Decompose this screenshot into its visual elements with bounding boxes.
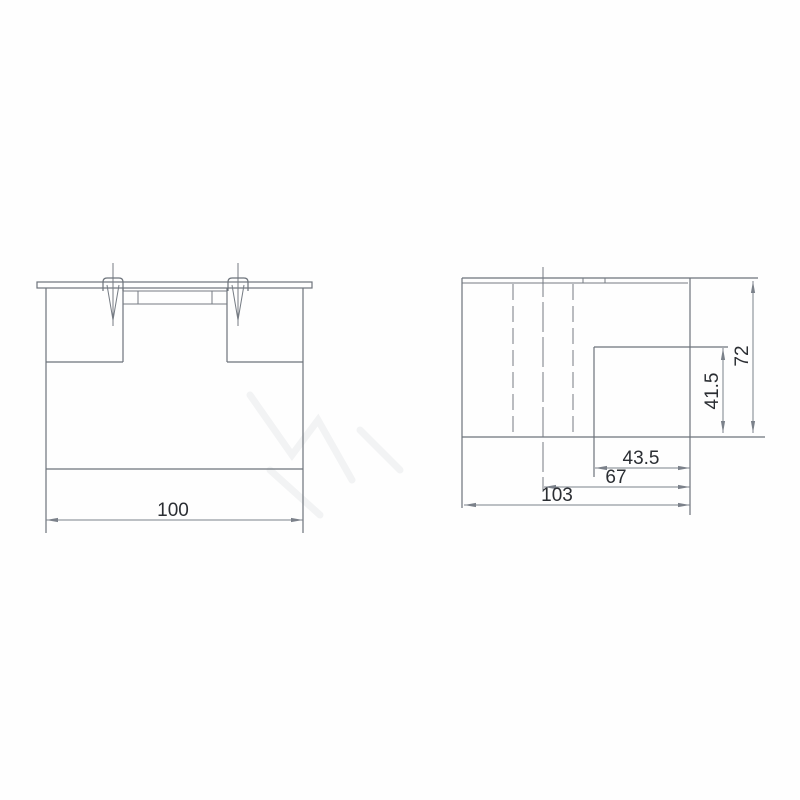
dim-overall-height: 72 [732,281,753,433]
dim-center-to-edge-label: 67 [605,467,626,488]
dim-overall-width-label: 103 [541,485,573,506]
dim-front-width-label: 100 [157,500,189,521]
front-view: 100 [37,263,312,533]
dim-recess-height-label: 41.5 [702,373,723,410]
dim-recess-width-label: 43.5 [623,448,660,469]
scan-artifact [250,395,400,515]
dim-overall-width: 103 [464,485,690,506]
technical-drawing-canvas: 100 [0,0,800,800]
front-center-rail [123,291,227,304]
dim-front-width: 100 [46,500,303,521]
dim-overall-height-label: 72 [732,345,753,366]
drawing-page: 100 [0,0,800,800]
front-left-block [46,288,123,362]
dim-recess-width: 43.5 [595,448,690,469]
spring-clip-left [103,263,123,326]
front-flange [37,282,312,288]
spring-clip-right [228,263,248,326]
side-view: 43.5 67 103 41.5 72 [462,267,765,515]
dim-recess-height: 41.5 [702,348,723,433]
side-recess [594,347,728,477]
